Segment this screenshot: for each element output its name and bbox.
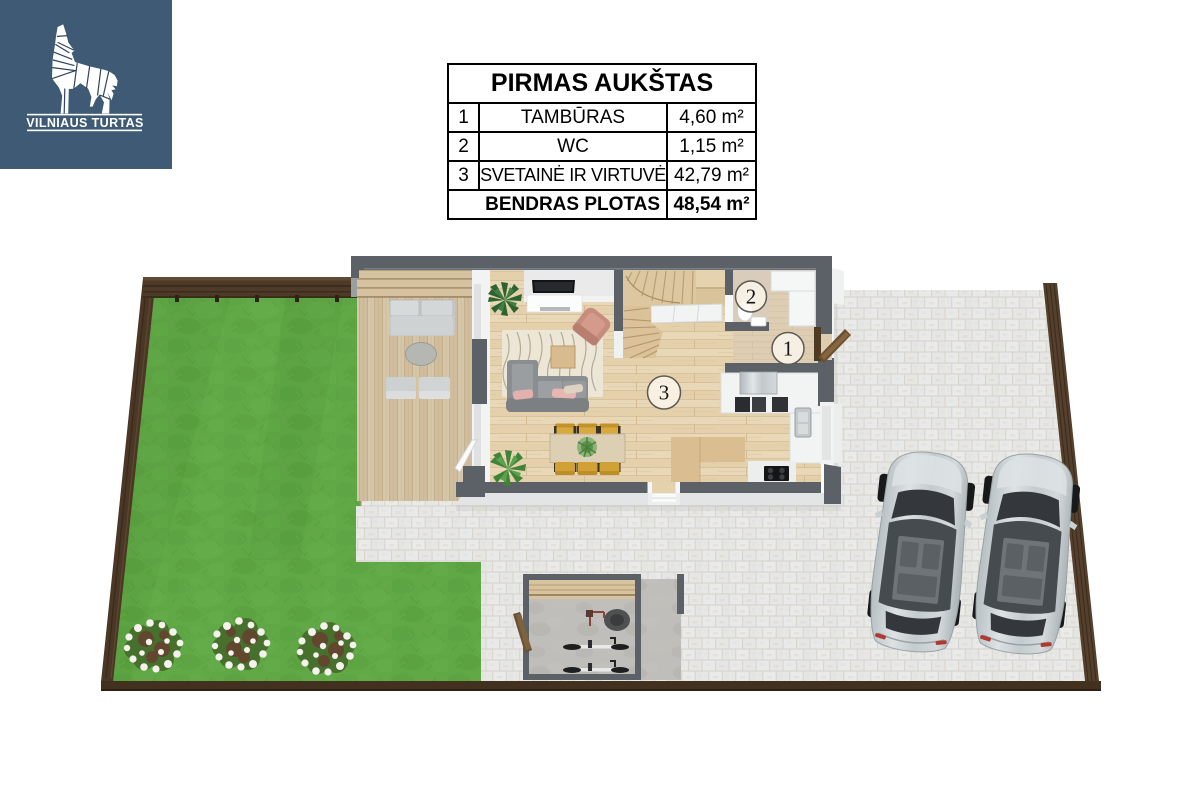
svg-text:3: 3 <box>659 381 670 405</box>
svg-text:VILNIAUS TURTAS: VILNIAUS TURTAS <box>26 116 144 130</box>
svg-text:2: 2 <box>746 285 757 309</box>
svg-text:1: 1 <box>783 337 794 361</box>
